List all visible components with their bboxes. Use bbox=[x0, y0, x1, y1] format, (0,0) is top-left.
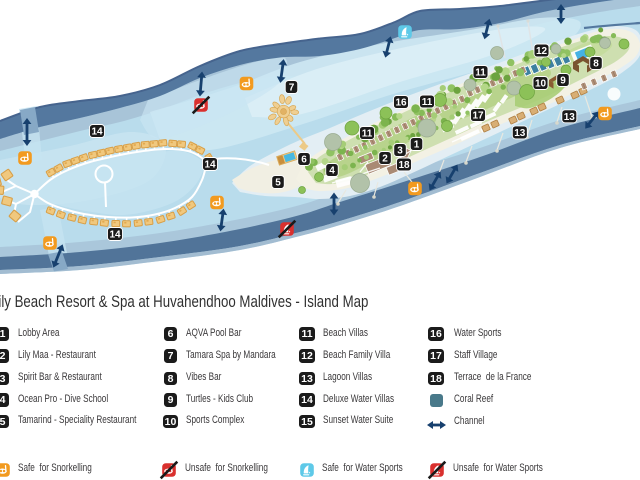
svg-text:11: 11 bbox=[475, 68, 486, 79]
svg-text:14: 14 bbox=[91, 127, 103, 138]
svg-text:18: 18 bbox=[398, 160, 410, 171]
svg-text:1: 1 bbox=[414, 140, 420, 151]
svg-text:16: 16 bbox=[395, 98, 407, 109]
svg-text:17: 17 bbox=[472, 111, 484, 122]
svg-text:11: 11 bbox=[362, 129, 373, 140]
svg-text:10: 10 bbox=[535, 79, 547, 90]
svg-text:2: 2 bbox=[382, 154, 388, 165]
svg-text:11: 11 bbox=[422, 97, 433, 108]
svg-text:14: 14 bbox=[204, 160, 216, 171]
svg-text:13: 13 bbox=[514, 128, 526, 139]
svg-text:13: 13 bbox=[564, 112, 576, 123]
svg-text:8: 8 bbox=[593, 59, 599, 70]
svg-text:7: 7 bbox=[289, 83, 295, 94]
svg-text:4: 4 bbox=[329, 166, 335, 177]
svg-text:6: 6 bbox=[301, 155, 307, 166]
svg-text:9: 9 bbox=[560, 76, 566, 87]
svg-text:3: 3 bbox=[397, 146, 403, 157]
svg-text:14: 14 bbox=[109, 230, 121, 241]
svg-text:12: 12 bbox=[536, 46, 548, 57]
svg-text:5: 5 bbox=[275, 178, 281, 189]
